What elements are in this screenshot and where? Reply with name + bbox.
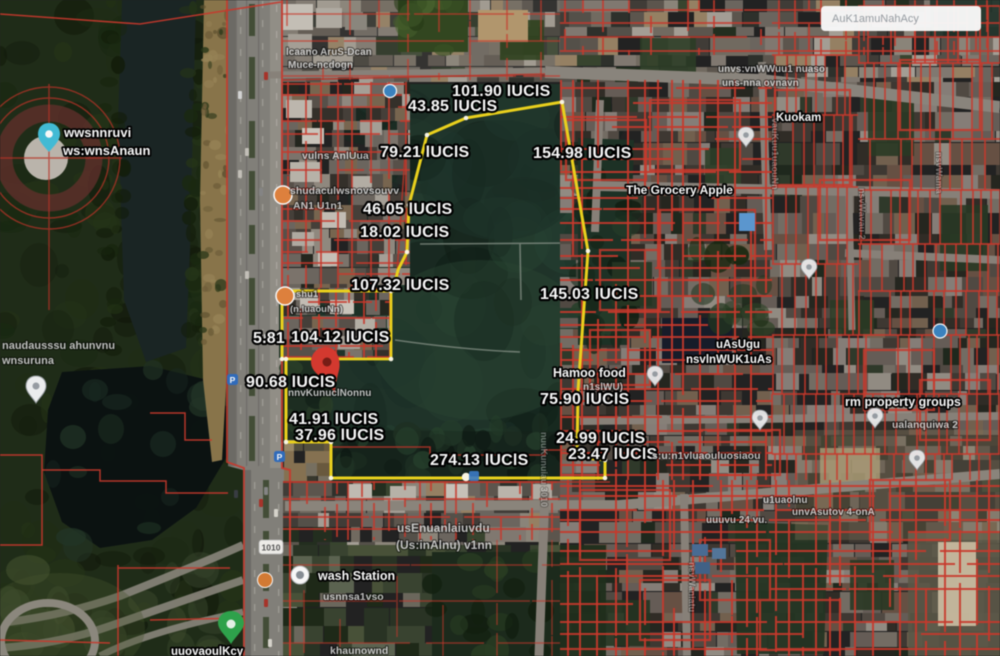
svg-text:1010: 1010 — [262, 543, 281, 553]
svg-text:41.91 lUClS: 41.91 lUClS — [289, 411, 378, 428]
svg-text:s:u:n1vluaouluosiaou: s:u:n1vluaouluosiaou — [652, 450, 761, 462]
svg-text:nnvKunuclNonnu: nnvKunuclNonnu — [288, 388, 371, 399]
svg-text:vulns AnlUua: vulns AnlUua — [302, 150, 369, 162]
svg-text:46.05 lUClS: 46.05 lUClS — [363, 201, 452, 218]
svg-text:P: P — [230, 375, 236, 385]
svg-text:unvAsutov 4-onA: unvAsutov 4-onA — [792, 507, 875, 518]
svg-text:nsvlnWUK1uAs: nsvlnWUK1uAs — [686, 354, 772, 366]
svg-text:khaunownd: khaunownd — [330, 645, 388, 656]
svg-text:wwsnnruvi: wwsnnruvi — [63, 125, 131, 140]
svg-text:154.98 lUClS: 154.98 lUClS — [533, 145, 632, 162]
svg-text:uuovaoulKcy: uuovaoulKcy — [171, 646, 244, 656]
svg-text:AuK1amuNahAcy: AuK1amuNahAcy — [832, 13, 919, 25]
svg-text:usnnsa1vso: usnnsa1vso — [323, 591, 384, 603]
svg-text:107.32 lUClS: 107.32 lUClS — [351, 277, 450, 294]
svg-text:naudausssu ahunvnu: naudausssu ahunvnu — [2, 340, 115, 352]
svg-text:nuuKunuiau 3010: nuuKunuiau 3010 — [539, 432, 549, 507]
svg-text:24.99 lUClS: 24.99 lUClS — [556, 430, 645, 447]
svg-text:ualanquiwa 2: ualanquiwa 2 — [892, 419, 958, 431]
svg-text:wnsuruna: wnsuruna — [1, 355, 55, 367]
svg-text:uAsUgu: uAsUgu — [716, 339, 760, 351]
svg-text:ws:wnsAnaun: ws:wnsAnaun — [62, 143, 150, 158]
svg-text:nsvWama: nsvWama — [934, 152, 944, 195]
svg-text:Hamoo food: Hamoo food — [553, 366, 626, 380]
svg-text:wash Station: wash Station — [317, 569, 395, 583]
svg-text:shudaculwsnovsouvv: shudaculwsnovsouvv — [290, 185, 399, 197]
svg-text:uns-nna ovnavn: uns-nna ovnavn — [722, 78, 799, 89]
svg-text:(Us:inAlnu) v1nn: (Us:inAlnu) v1nn — [396, 538, 492, 552]
svg-text:lcaano AruS-Dcan: lcaano AruS-Dcan — [286, 47, 372, 58]
svg-text:145.03 lUClS: 145.03 lUClS — [540, 286, 639, 303]
svg-text:104.12 lUClS: 104.12 lUClS — [291, 329, 390, 346]
svg-text:43.85 lUClS: 43.85 lUClS — [408, 98, 497, 115]
svg-text:u1uaolnu: u1uaolnu — [763, 495, 807, 506]
svg-text:The Grocery Apple: The Grocery Apple — [626, 183, 733, 197]
svg-text:37.96 lUClS: 37.96 lUClS — [295, 427, 384, 444]
svg-text:23.47 lUClS: 23.47 lUClS — [568, 446, 657, 463]
svg-text:P: P — [277, 452, 283, 462]
svg-text:usEnuanlaiuvdu: usEnuanlaiuvdu — [397, 521, 490, 535]
svg-text:Muce-ncdogn: Muce-ncdogn — [288, 60, 353, 71]
svg-text:79.21 lUClS: 79.21 lUClS — [380, 144, 469, 161]
svg-text:AN1 U1n1: AN1 U1n1 — [293, 200, 343, 212]
svg-text:rm property groups: rm property groups — [845, 395, 961, 409]
svg-text:75.90 lUClS: 75.90 lUClS — [540, 391, 629, 408]
svg-text:18.02 lUClS: 18.02 lUClS — [360, 224, 449, 241]
svg-text:(n.luaouNn): (n.luaouNn) — [290, 304, 343, 315]
svg-text:nsvWavau 2: nsvWavau 2 — [857, 188, 867, 240]
svg-text:nsvWaniatu: nsvWaniatu — [687, 562, 697, 612]
svg-text:unvs:vnWWuu1 nuaso: unvs:vnWWuu1 nuaso — [718, 64, 825, 75]
svg-text:vauKuu1uaouNn: vauKuu1uaouNn — [770, 118, 780, 190]
svg-text:n1slWU): n1slWU) — [583, 382, 623, 393]
svg-text:274.13 lUClS: 274.13 lUClS — [430, 452, 529, 469]
svg-text:shu1: shu1 — [296, 289, 319, 300]
svg-text:uuuvu 24 vu.: uuuvu 24 vu. — [706, 515, 767, 526]
svg-text:5.81: 5.81 — [253, 330, 285, 347]
svg-text:Kuokam: Kuokam — [776, 112, 821, 124]
